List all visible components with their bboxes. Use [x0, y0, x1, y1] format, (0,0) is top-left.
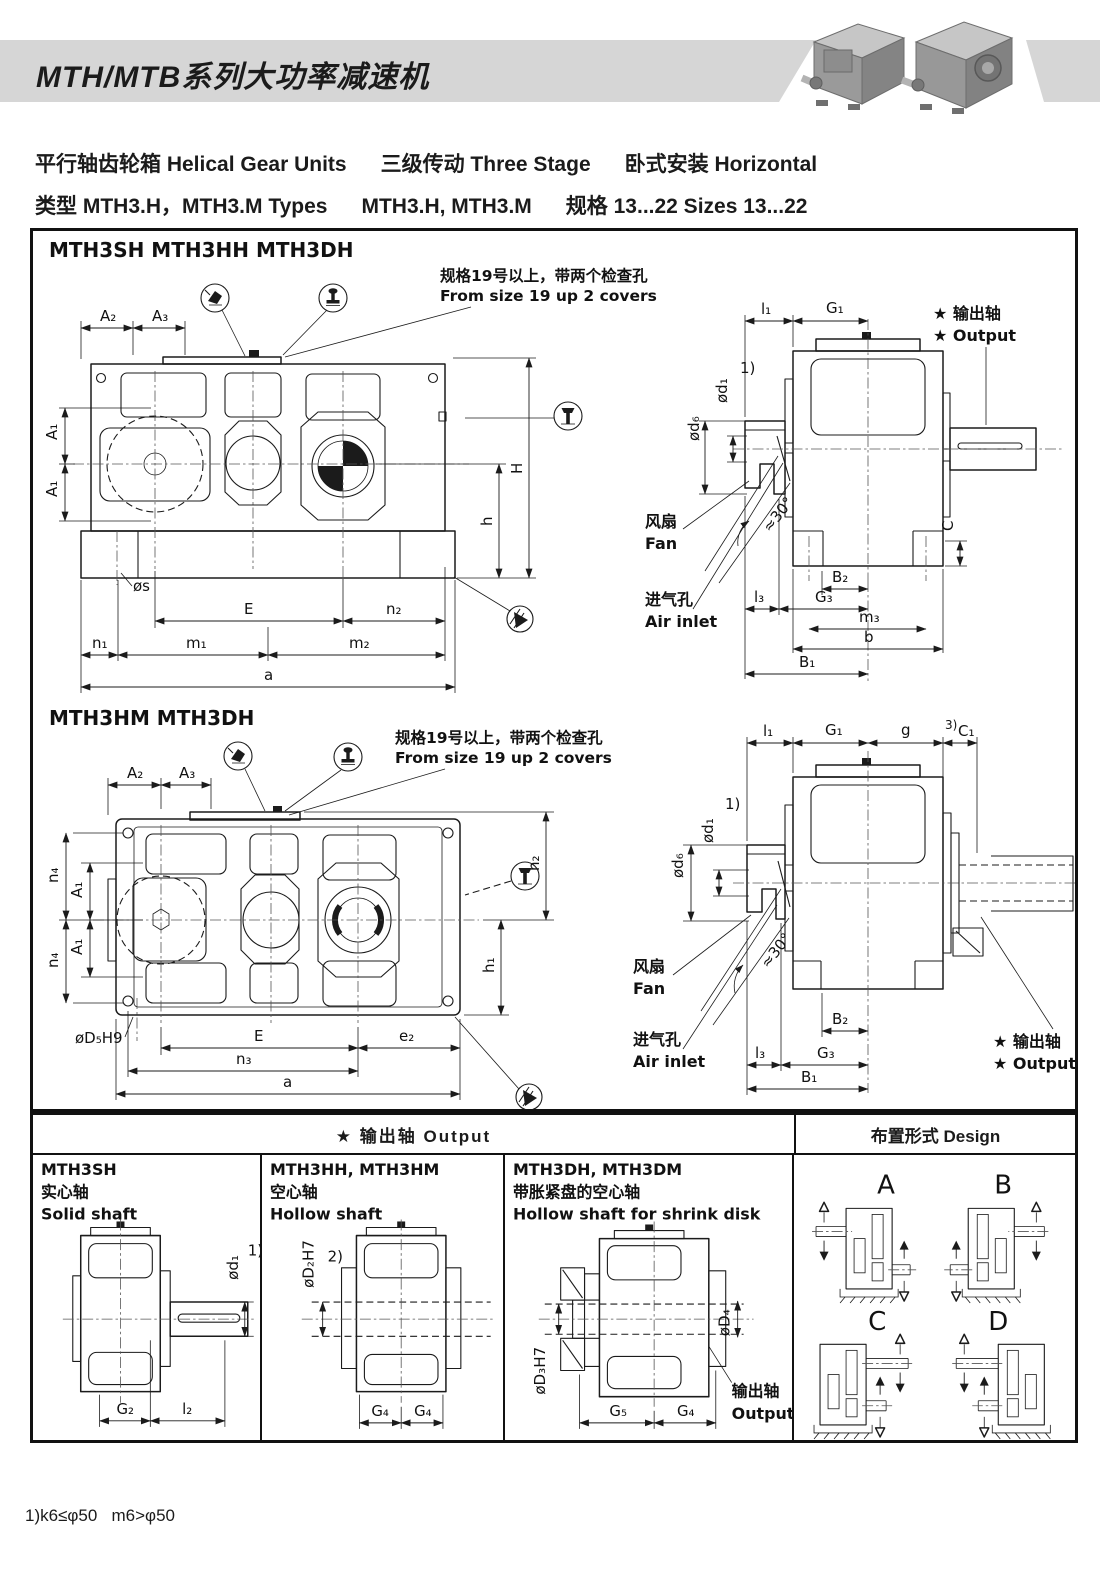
design-d-label: D: [988, 1307, 1008, 1337]
d1-side-dimensions: l₁ G₁ ★ 输出轴 ★ Output ød₁ 1) ød₆ 风扇 Fan: [645, 299, 1016, 681]
intro-line-1: 平行轴齿轮箱 Helical Gear Units三级传动 Three Stag…: [35, 148, 851, 178]
dim-H: H: [508, 463, 526, 474]
d2-side-dimensions: l₁ G₁ g 3) C₁ ød₁ 1) ød₆ 风扇 Fan ≈30°: [633, 718, 1075, 1095]
dim2-n4-top: n₄: [44, 867, 62, 883]
col1-dim-G2: G₂: [117, 1400, 135, 1418]
dim2-A2: A₂: [127, 764, 143, 782]
dim-a: a: [264, 666, 273, 684]
drawing-2-title: MTH3HM MTH3DH: [49, 706, 254, 730]
dim2-oD5H9: øD₅H9: [75, 1029, 123, 1047]
output-header: ★ 输出轴 Output: [33, 1115, 796, 1153]
design-a-label: A: [877, 1170, 895, 1200]
dim2-e2: e₂: [399, 1027, 414, 1045]
dim-n2: n₂: [386, 600, 402, 618]
shrink-disk-drawing: MTH3DH, MTH3DM 带胀紧盘的空心轴 Hollow shaft for…: [505, 1155, 791, 1441]
d2-front-view: [93, 806, 479, 1041]
header-band-right: [1026, 40, 1100, 102]
note-zh: 规格19号以上，带两个检查孔: [440, 266, 648, 285]
output2-label-en: ★ Output: [993, 1054, 1075, 1073]
ref-3: 3): [945, 718, 957, 732]
dim-b: b: [864, 628, 874, 646]
col1-model: MTH3SH: [41, 1160, 117, 1179]
fan2-label-en: Fan: [633, 979, 665, 998]
dim-B1: B₁: [799, 653, 815, 671]
dim-n1: n₁: [92, 634, 108, 652]
hollow-shaft-drawing: MTH3HH, MTH3HM 空心轴 Hollow shaft øD₂H7 2: [262, 1155, 504, 1441]
design-header: 布置形式 Design: [796, 1115, 1075, 1153]
col2-zh: 空心轴: [270, 1182, 318, 1201]
dim-h: h: [478, 516, 496, 526]
gearbox-photo-right: [902, 22, 1012, 114]
dim-l1: l₁: [761, 300, 771, 318]
col3-en: Hollow shaft for shrink disk: [513, 1204, 761, 1223]
intro-1-seg-1: 平行轴齿轮箱 Helical Gear Units: [35, 153, 347, 176]
dim-m2: m₂: [349, 634, 370, 652]
col2-dim-G4b: G₄: [414, 1402, 432, 1420]
note-en-2: From size 19 up 2 covers: [395, 749, 612, 767]
design-a-diagram: [812, 1202, 916, 1303]
air-inlet-label-en: Air inlet: [645, 612, 718, 631]
dim-E: E: [244, 600, 253, 618]
air-inlet-label-zh: 进气孔: [645, 590, 693, 609]
fan2-label-zh: 风扇: [633, 957, 665, 976]
drawing-1: MTH3SH MTH3HH MTH3DH 规格19号以上，带两个检查孔 From…: [33, 231, 1075, 693]
oil-level-icon: [554, 402, 582, 430]
oil-fill-icon-2: [224, 742, 252, 770]
col3-model: MTH3DH, MTH3DM: [513, 1160, 682, 1179]
dim-A3: A₃: [152, 307, 168, 325]
col3-dim-G4: G₄: [677, 1402, 695, 1420]
cell-hollow-shaft: MTH3HH, MTH3HM 空心轴 Hollow shaft øD₂H7 2: [262, 1155, 506, 1441]
output-label-en: ★ Output: [933, 326, 1016, 345]
col2-en: Hollow shaft: [270, 1204, 383, 1223]
oil-drain-icon: [507, 606, 533, 632]
breather-icon-2: [334, 743, 362, 771]
col3-zh: 带胀紧盘的空心轴: [513, 1182, 640, 1201]
drawing-1-title: MTH3SH MTH3HH MTH3DH: [49, 238, 353, 262]
col2-dim-bore: øD₂H7: [299, 1240, 317, 1288]
d1-front-dimensions: A₂ A₃ A₁ A₁ øs E n₂: [43, 307, 536, 693]
d1-side-view: [733, 319, 1063, 581]
drawing-2: MTH3HM MTH3DH 规格19号以上，带两个检查孔 From size 1…: [33, 693, 1075, 1109]
output-table: ★ 输出轴 Output 布置形式 Design MTH3SH 实心轴 Soli…: [30, 1112, 1078, 1443]
dim2-A1-top: A₁: [68, 882, 86, 898]
footnote-1: 1)k6≤φ50 m6>φ50: [25, 1503, 1022, 1530]
dim-l3: l₃: [754, 588, 764, 606]
dim2-n4-bottom: n₄: [44, 952, 62, 968]
drawings-panel: MTH3SH MTH3HH MTH3DH 规格19号以上，带两个检查孔 From…: [30, 228, 1078, 1112]
dim-G3: G₃: [815, 588, 833, 606]
col2-model: MTH3HH, MTH3HM: [270, 1160, 439, 1179]
dim-C: C: [939, 521, 957, 531]
fan-label-en: Fan: [645, 534, 677, 553]
dim2-A1-bottom: A₁: [68, 939, 86, 955]
dim2-E: E: [254, 1027, 263, 1045]
dim-G1: G₁: [826, 299, 844, 317]
col3-output-zh: 输出轴: [732, 1382, 780, 1401]
col2-dim-G4a: G₄: [371, 1402, 389, 1420]
breather-icon: [319, 284, 347, 312]
col1-dim-l2: l₂: [182, 1400, 192, 1418]
cell-designs: A B C D: [794, 1155, 1075, 1441]
note-en: From size 19 up 2 covers: [440, 287, 657, 305]
intro-1-seg-2: 三级传动 Three Stage: [381, 153, 591, 176]
dim2-B1: B₁: [801, 1068, 817, 1086]
dim-od1: ød₁: [713, 378, 731, 403]
design-b-diagram: [944, 1202, 1048, 1303]
dim-m3: m₃: [859, 608, 880, 626]
intro-1-seg-3: 卧式安装 Horizontal: [625, 153, 818, 176]
col1-dim-od1: ød₁: [224, 1255, 242, 1280]
oil-drain-icon-2: [516, 1084, 542, 1109]
dim2-G3: G₃: [817, 1044, 835, 1062]
note-zh-2: 规格19号以上，带两个检查孔: [395, 728, 603, 747]
air2-label-zh: 进气孔: [633, 1030, 681, 1049]
solid-shaft-drawing: MTH3SH 实心轴 Solid shaft ød₁ 1): [33, 1155, 260, 1441]
ref-1: 1): [740, 359, 755, 377]
col1-ref1: 1): [248, 1242, 260, 1260]
intro-line-2: 类型 MTH3.H，MTH3.M TypesMTH3.H, MTH3.M规格 1…: [35, 190, 841, 220]
dim2-od1: ød₁: [699, 818, 717, 843]
dim2-a: a: [283, 1073, 292, 1091]
col3-output-en: Output: [732, 1404, 792, 1423]
table-header-row: ★ 输出轴 Output 布置形式 Design: [33, 1115, 1075, 1155]
col3-dim-bore: øD₃H7: [531, 1347, 549, 1395]
design-c-label: C: [868, 1307, 886, 1337]
footnotes: 1)k6≤φ50 m6>φ50 有关平键 GB/T1095-1979型和中心孔，…: [25, 1450, 1022, 1583]
intro-2-seg-2: MTH3.H, MTH3.M: [361, 195, 531, 218]
dim-os: øs: [133, 577, 150, 595]
dim2-od6: ød₆: [669, 853, 687, 878]
dim2-h1: h₁: [480, 957, 498, 973]
col3-dim-G5: G₅: [610, 1402, 628, 1420]
dim2-G1: G₁: [825, 721, 843, 739]
dim2-A3: A₃: [179, 764, 195, 782]
oil-fill-icon: [201, 284, 229, 312]
col2-ref2: 2): [327, 1248, 342, 1266]
dim-m1: m₁: [186, 634, 207, 652]
d2-side-view: [733, 751, 1075, 1003]
dim2-B2: B₂: [832, 1010, 848, 1028]
dim-A1-bottom: A₁: [43, 481, 61, 497]
output-label-zh: ★ 输出轴: [933, 304, 1001, 323]
design-d-diagram: [950, 1334, 1050, 1439]
air2-label-en: Air inlet: [633, 1052, 706, 1071]
dim-od6: ød₆: [685, 416, 703, 441]
ref-1b: 1): [725, 795, 740, 813]
dim2-C1: C₁: [958, 722, 975, 740]
design-diagrams: A B C D: [794, 1155, 1075, 1441]
output2-label-zh: ★ 输出轴: [993, 1032, 1061, 1051]
gearbox-photo-left: [802, 24, 904, 110]
dim-B2: B₂: [832, 568, 848, 586]
cell-solid-shaft: MTH3SH 实心轴 Solid shaft ød₁ 1): [33, 1155, 262, 1441]
design-b-label: B: [994, 1170, 1012, 1200]
intro-2-seg-1: 类型 MTH3.H，MTH3.M Types: [35, 195, 327, 218]
col1-en: Solid shaft: [41, 1204, 138, 1223]
col1-zh: 实心轴: [41, 1182, 89, 1201]
dim2-g: g: [901, 721, 911, 739]
page-title: MTH/MTB系列大功率减速机: [36, 52, 429, 96]
fan-label-zh: 风扇: [645, 512, 677, 531]
dim2-l3: l₃: [755, 1044, 765, 1062]
catalog-page: MTH/MTB系列大功率减速机 平行轴齿轮箱 Helical Gear Unit…: [0, 0, 1100, 1583]
dim-A2: A₂: [100, 307, 116, 325]
d1-front-view: [73, 350, 469, 585]
dim2-l1: l₁: [763, 722, 773, 740]
center-mark-icon: [343, 441, 368, 466]
dim-A1-top: A₁: [43, 424, 61, 440]
design-c-diagram: [814, 1334, 914, 1439]
table-body-row: MTH3SH 实心轴 Solid shaft ød₁ 1): [33, 1155, 1075, 1441]
dim2-n3: n₃: [236, 1050, 252, 1068]
intro-2-seg-3: 规格 13...22 Sizes 13...22: [566, 195, 808, 218]
cell-shrink-disk: MTH3DH, MTH3DM 带胀紧盘的空心轴 Hollow shaft for…: [505, 1155, 793, 1441]
col3-dim-oD4: øD₄: [716, 1309, 734, 1336]
